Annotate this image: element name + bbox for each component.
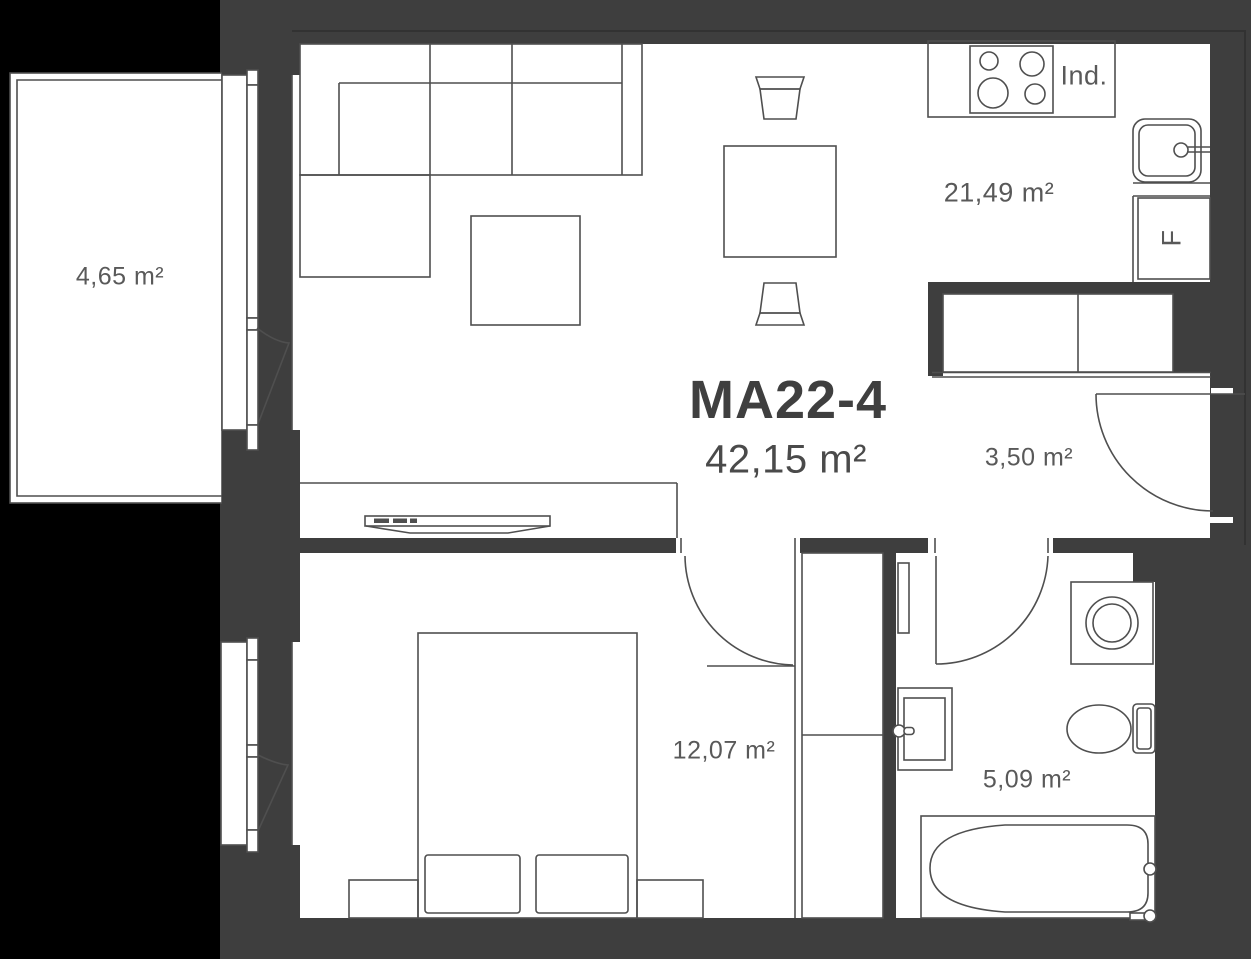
hallway-area-label: 3,50 m²: [985, 444, 1073, 473]
induction-hob-label: Ind.: [1060, 61, 1107, 92]
toilet-icon: [1067, 704, 1155, 753]
total-area-label: 42,15 m²: [705, 438, 867, 483]
bathroom-area-label: 5,09 m²: [983, 766, 1071, 795]
fridge-label: F: [1157, 230, 1188, 247]
unit-id-label: MA22-4: [689, 369, 887, 431]
washing-machine-icon: [1071, 582, 1153, 664]
balcony-area-label: 4,65 m²: [76, 263, 164, 292]
floor-plan: 4,65 m² 21,49 m² Ind. MA22-4 42,15 m² 3,…: [0, 0, 1251, 959]
living-kitchen-area-label: 21,49 m²: [944, 178, 1055, 209]
bedroom-area-label: 12,07 m²: [673, 737, 776, 766]
stove-icon: [970, 46, 1053, 113]
floor-plan-svg: [0, 0, 1251, 959]
